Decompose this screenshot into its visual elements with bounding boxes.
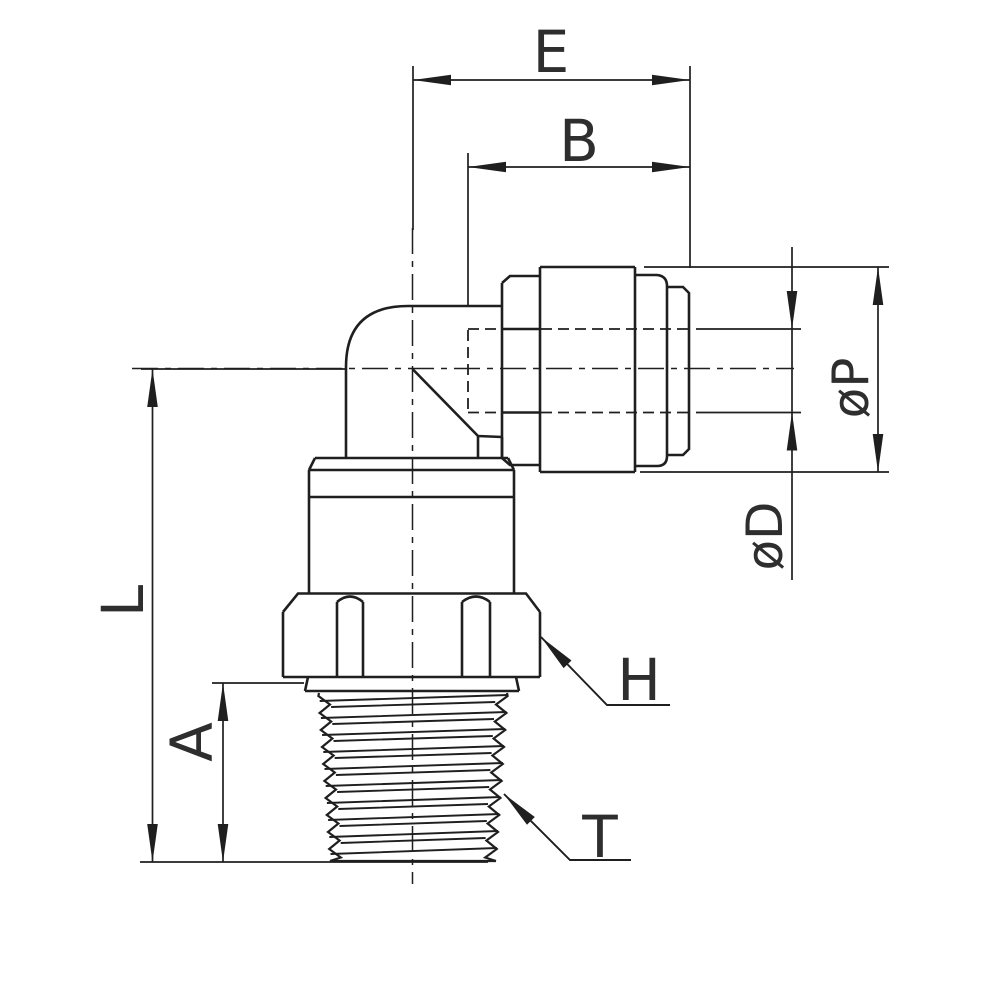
- leader-label-t: T: [581, 803, 618, 871]
- leader-label-h: H: [617, 646, 661, 714]
- dim-label-d: øD: [736, 501, 794, 570]
- dim-label-p: øP: [822, 358, 880, 419]
- dim-label-b: B: [559, 107, 599, 175]
- drawing-background: [0, 0, 1000, 1000]
- dim-label-a: A: [158, 722, 226, 762]
- technical-drawing-page: E B øP øD L A H T: [0, 0, 1000, 1000]
- dim-label-e: E: [533, 18, 570, 86]
- technical-drawing-canvas: E B øP øD L A H T: [0, 0, 1000, 1000]
- dim-label-l: L: [89, 585, 157, 617]
